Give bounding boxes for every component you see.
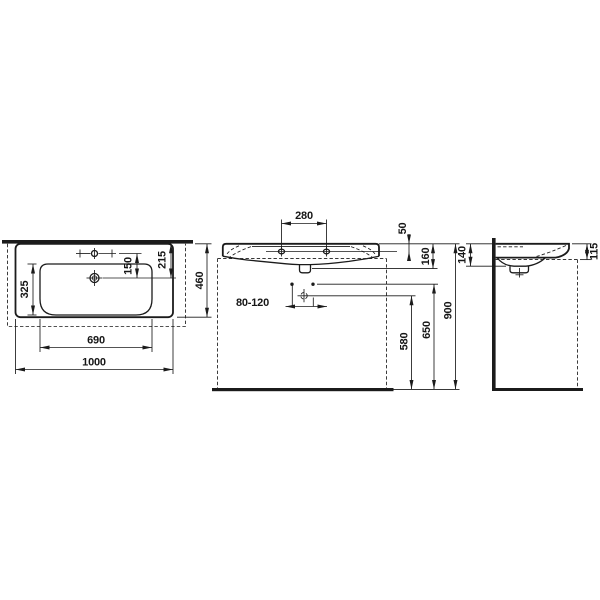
dim-label-floor-to-drain: 580: [399, 333, 411, 351]
wall-section-bar-side: [492, 238, 496, 390]
wall-anchor-dot-left: [290, 283, 293, 286]
dim-label-ceramic-height: 160: [420, 248, 432, 266]
floor-bar-side: [492, 388, 583, 391]
bowl-outline: [40, 264, 152, 315]
bowl-hidden-curve: [230, 247, 252, 258]
dim-ceramic-height: 160: [420, 244, 433, 269]
basin-side-outline: [496, 244, 569, 258]
drain-icon: [87, 270, 103, 286]
floor-bar: [212, 388, 394, 391]
dim-label-drain-offset-range: 80-120: [236, 297, 269, 309]
dim-label-bowl-width: 690: [87, 335, 105, 347]
drain-trap-outline: [300, 265, 311, 273]
dim-label-bowl-depth: 325: [19, 281, 31, 299]
bowl-hidden-curve: [351, 247, 373, 258]
dim-front-edge-to-drain: 215: [157, 244, 172, 278]
bowl-hidden-curve: [363, 246, 375, 254]
wall-anchor-dot-right: [311, 283, 314, 286]
dim-bowl-depth: 325: [19, 264, 37, 315]
front-view: 280 50 160 8: [212, 210, 460, 391]
drain-position-crosshair-icon: [298, 289, 311, 302]
dim-overall-depth: 460: [177, 244, 212, 317]
furniture-outline-dashed-front: [218, 259, 387, 388]
dim-label-rim-to-fixing-holes: 50: [397, 223, 409, 235]
drawing-canvas: 325 150 215 460 690: [0, 0, 600, 600]
washbasin-technical-drawing: 325 150 215 460 690: [0, 0, 600, 600]
bowl-hidden-curve: [227, 246, 239, 254]
dim-label-height-front: 115: [589, 243, 600, 260]
dim-floor-to-drain: 580: [399, 296, 412, 390]
dim-label-floor-to-rim: 900: [443, 302, 455, 320]
dim-floor-to-rim: 900: [443, 244, 456, 390]
dim-rim-to-fixing-holes: 50: [397, 223, 409, 261]
dim-bowl-width: 690: [40, 319, 152, 352]
side-view: 140 115: [457, 238, 600, 391]
dim-label-floor-to-fixing-holes: 650: [421, 321, 433, 339]
basin-underside-line: [223, 256, 379, 264]
dim-label-fixing-hole-spacing: 280: [295, 210, 313, 222]
dim-drain-offset-range: 80-120: [236, 286, 327, 310]
dim-label-front-edge-to-drain: 215: [157, 251, 169, 269]
plan-view: 325 150 215 460 690: [2, 240, 212, 374]
bowl-side-underside: [497, 258, 546, 267]
furniture-outline-dashed-side: [496, 260, 578, 388]
basin-front-outline: [223, 244, 379, 256]
dim-label-overall-width: 1000: [82, 357, 106, 369]
dim-fixing-hole-spacing: 280: [282, 210, 327, 248]
dim-label-taphole-to-drain: 150: [123, 257, 135, 275]
bowl-hidden-curve-side: [536, 246, 566, 257]
dim-height-front: 115: [572, 243, 600, 260]
dim-floor-to-fixing-holes: 650: [421, 284, 434, 389]
tap-hole-icon: [76, 248, 116, 259]
dim-overall-width: 1000: [16, 319, 174, 374]
dim-label-height-back: 140: [457, 246, 469, 264]
dim-label-overall-depth: 460: [194, 272, 206, 290]
